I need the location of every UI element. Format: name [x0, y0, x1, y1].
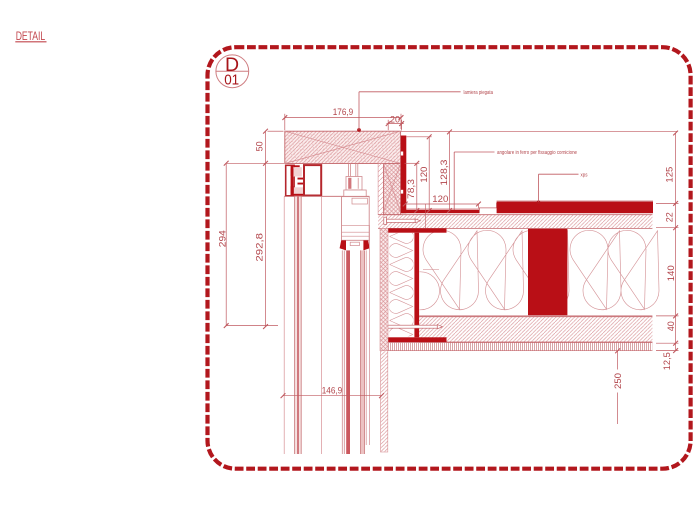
svg-text:250: 250 [613, 373, 623, 389]
svg-text:01: 01 [224, 71, 239, 88]
svg-text:xps: xps [581, 172, 588, 178]
svg-text:125: 125 [664, 167, 674, 183]
svg-text:78,3: 78,3 [406, 179, 416, 199]
svg-text:120: 120 [419, 167, 429, 183]
svg-text:22: 22 [664, 212, 674, 222]
svg-text:176,9: 176,9 [333, 107, 354, 117]
svg-text:20: 20 [390, 115, 400, 125]
svg-text:294: 294 [217, 230, 227, 247]
svg-text:140: 140 [666, 265, 676, 281]
svg-text:angolare in ferro per fissaggi: angolare in ferro per fissaggio cornicio… [497, 150, 577, 156]
svg-text:50: 50 [254, 141, 264, 151]
svg-text:DETAIL: DETAIL [16, 29, 46, 43]
svg-text:120: 120 [432, 194, 448, 204]
svg-text:lamiera piegata: lamiera piegata [464, 90, 494, 96]
svg-text:128,3: 128,3 [439, 160, 449, 186]
svg-text:40: 40 [666, 321, 676, 331]
svg-text:146,9: 146,9 [322, 386, 343, 396]
svg-text:292,8: 292,8 [255, 233, 265, 262]
svg-text:12,5: 12,5 [662, 352, 672, 370]
